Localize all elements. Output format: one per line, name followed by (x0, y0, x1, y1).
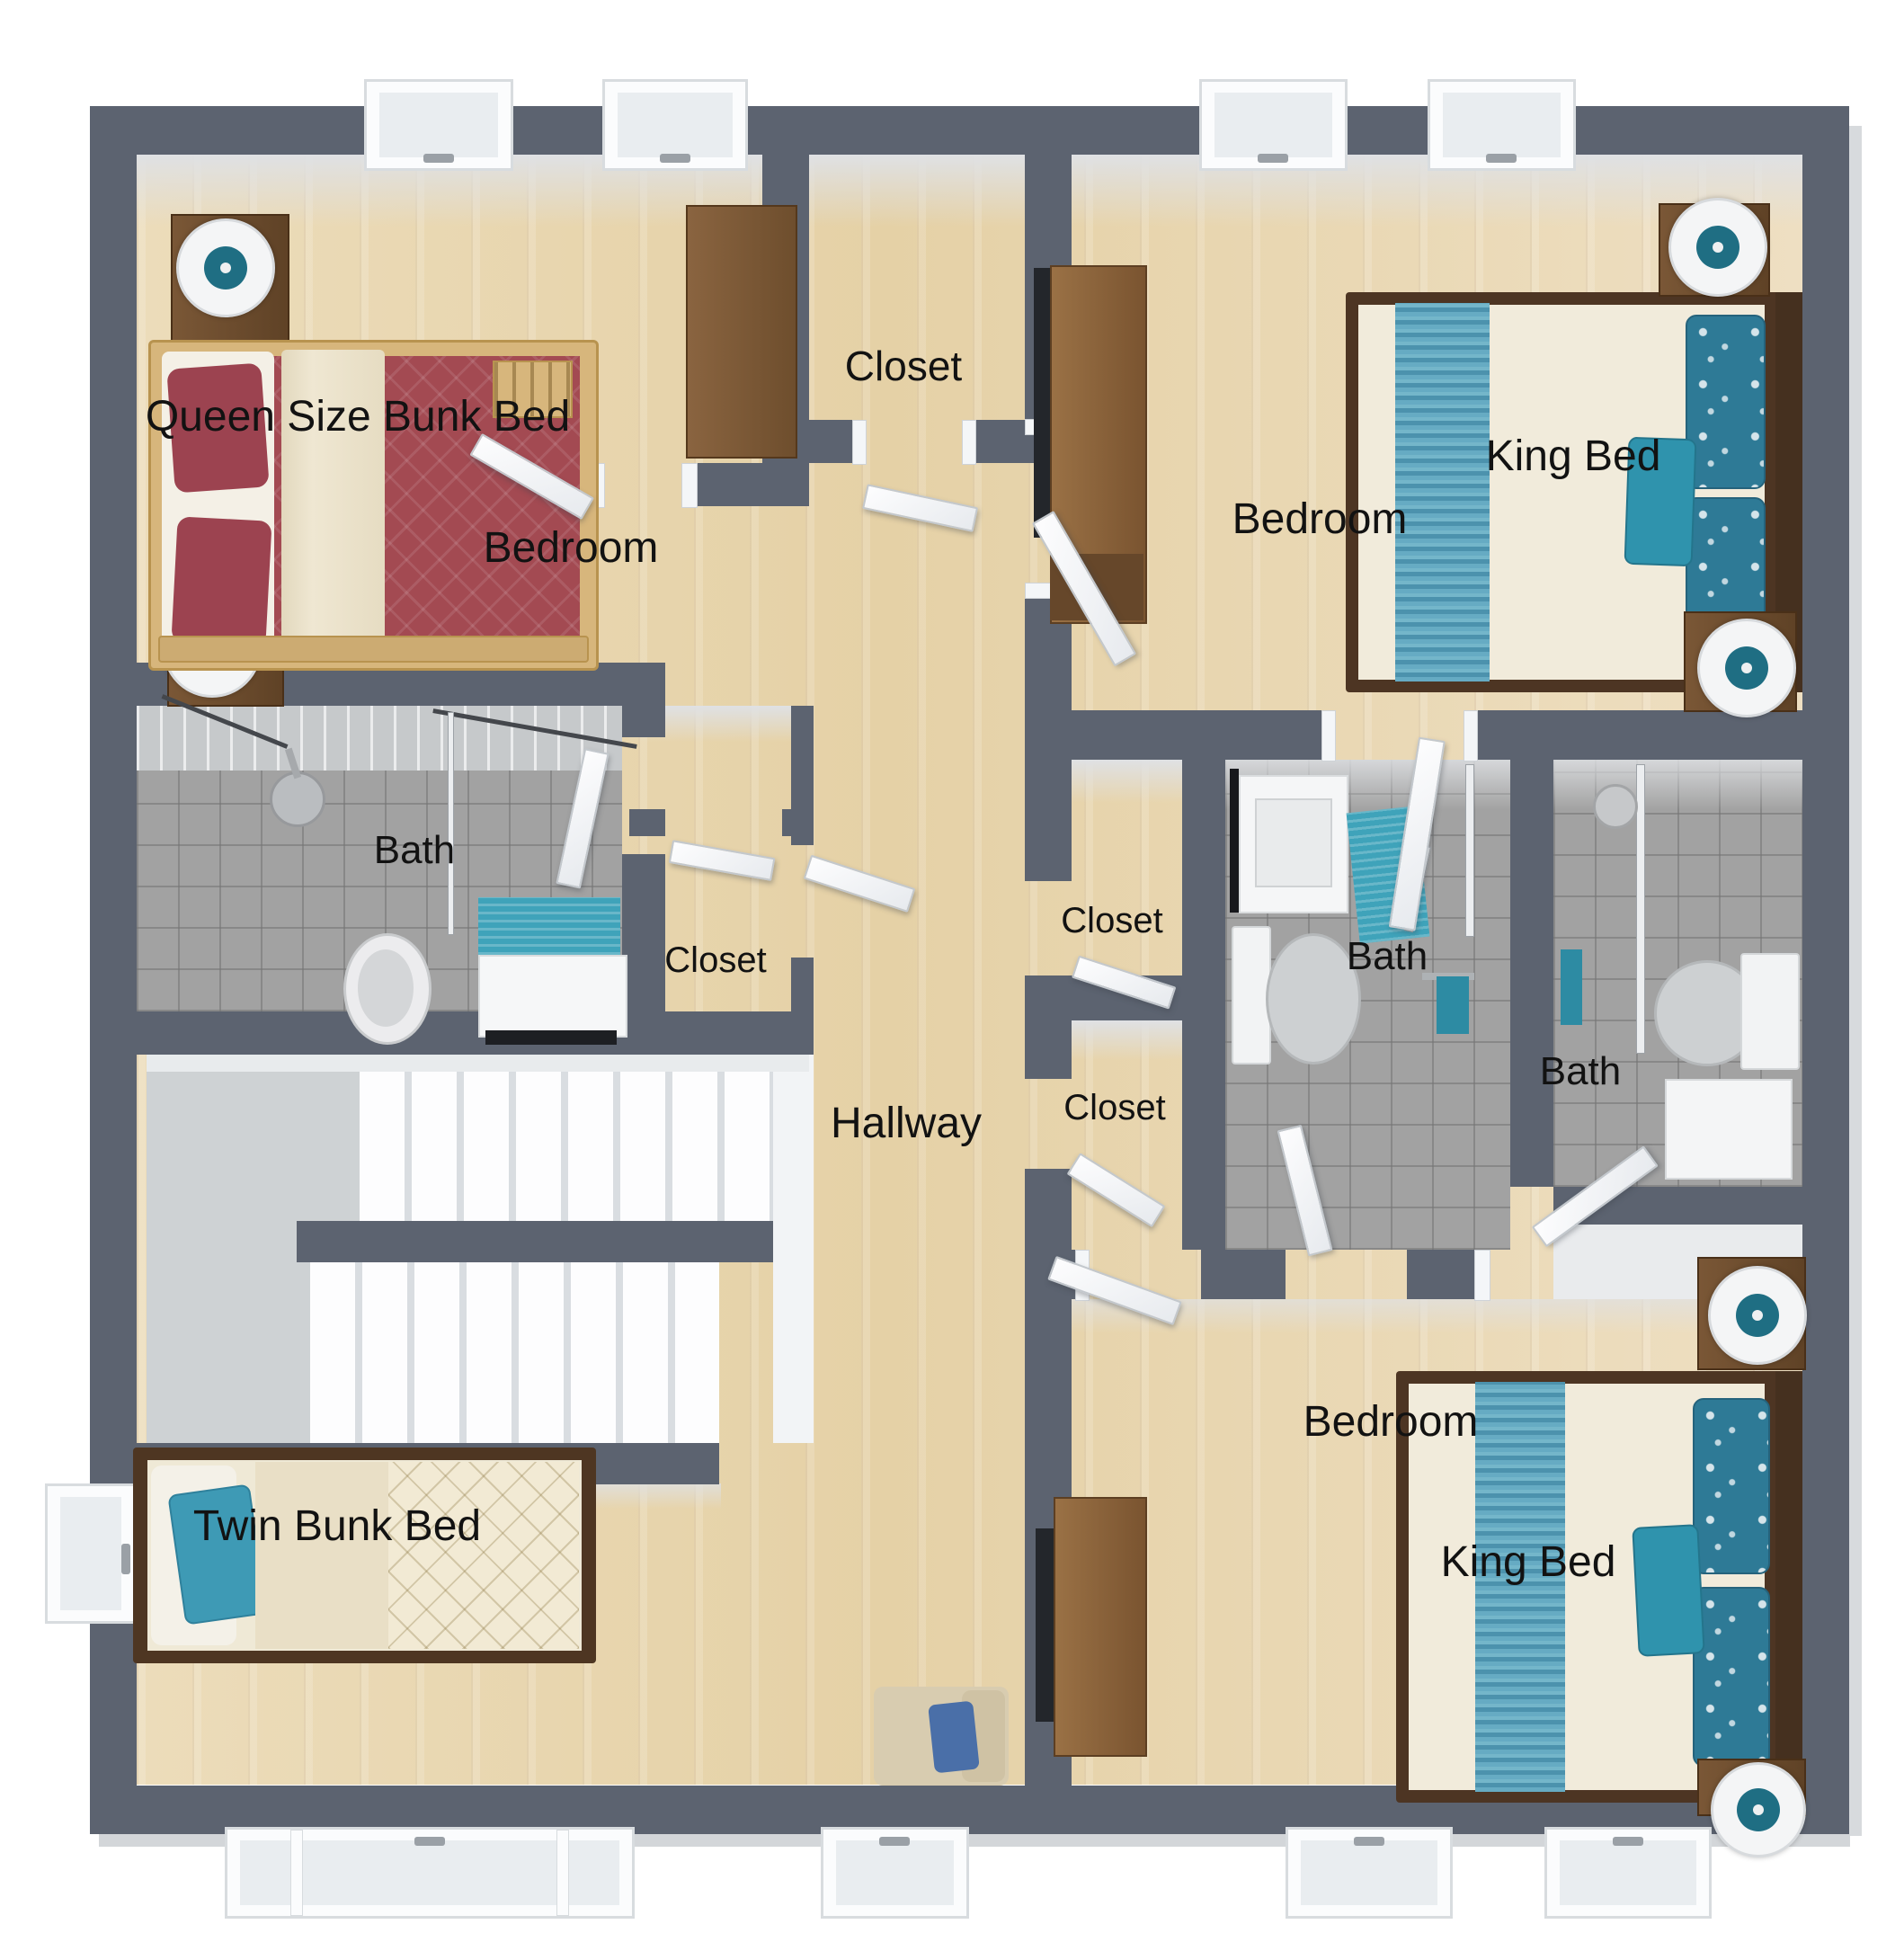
sink (1255, 798, 1332, 887)
label-bath-right: Bath (1311, 1050, 1850, 1093)
wall-bedroomC-bottom-east (1474, 710, 1802, 760)
wardrobe (686, 205, 797, 459)
bunk-footrail (158, 636, 589, 663)
window-bottom-2 (821, 1827, 969, 1919)
label-bedroom-bottom-right: Bedroom (1121, 1399, 1660, 1447)
wall-bedroomH-top-2 (1201, 1250, 1286, 1299)
label-bath-middle: Bath (1117, 935, 1657, 978)
queen-bunk-bed (148, 340, 599, 671)
shower-head (1593, 784, 1638, 829)
exterior-shadow-right (1849, 126, 1862, 1836)
label-closet-top: Closet (634, 343, 1173, 389)
jamb-bedroomA-2 (681, 463, 698, 508)
window-post (290, 1830, 303, 1916)
stair-top-edge (147, 1052, 809, 1072)
window-post (556, 1830, 569, 1916)
wall-bedroomA-jog-right (697, 463, 809, 506)
shower-panel (1465, 764, 1474, 937)
armchair (874, 1687, 1009, 1786)
wall-hall-east-4 (1025, 1169, 1072, 1250)
label-bedroom-top-left: Bedroom (301, 525, 841, 573)
twin-bunk-bed (133, 1448, 596, 1663)
window-glass (1301, 1840, 1437, 1905)
wall-bedroomH-top-3 (1407, 1250, 1474, 1299)
window-glass (379, 93, 498, 157)
window-handle (879, 1837, 910, 1846)
window-handle (423, 154, 454, 163)
bedroom-br-wall-face (1072, 1299, 1802, 1333)
bunk-pillow (171, 516, 271, 646)
twin-sheet (255, 1462, 388, 1649)
closet-lower-wall-face (1072, 1020, 1182, 1060)
window-handle (414, 1837, 445, 1846)
wall-closetE-right-upper (791, 706, 814, 845)
jamb-closetB-1 (852, 420, 867, 465)
towel-teal (1437, 976, 1469, 1034)
label-bath-left: Bath (145, 829, 684, 872)
window-handle (1613, 1837, 1643, 1846)
table-lamp (1697, 619, 1796, 717)
shower-divider (448, 712, 454, 935)
shower-head (270, 771, 325, 827)
window-top-3 (1199, 79, 1348, 171)
king-headboard (1775, 1371, 1802, 1803)
wall-bedroomC-bottom-west (1025, 710, 1330, 760)
king-pillow-floral (1693, 1587, 1770, 1767)
king-runner (1395, 303, 1490, 681)
wall-bathD-right-lower (622, 854, 665, 1011)
label-hallway: Hallway (636, 1100, 1176, 1148)
window-bottom-wide (225, 1827, 635, 1919)
window-top-4 (1428, 79, 1576, 171)
counter-edge (1230, 769, 1239, 913)
table-lamp (1708, 1266, 1807, 1365)
window-glass (1214, 93, 1332, 157)
window-glass (1560, 1840, 1696, 1905)
twin-quilt (388, 1462, 579, 1649)
window-glass (1443, 93, 1561, 157)
toilet-seat (358, 949, 414, 1027)
jamb-bathM-north-1 (1321, 710, 1336, 762)
wall-stairwell-top (90, 1011, 814, 1055)
wall-closets-right (1182, 760, 1225, 1250)
jamb-bathN-vestibule (1474, 1250, 1490, 1301)
table-lamp (1711, 1762, 1806, 1857)
jamb-bathM-north-2 (1464, 710, 1478, 762)
window-bottom-4 (1544, 1827, 1712, 1919)
stair-divider-wall (297, 1221, 782, 1262)
table-lamp (176, 218, 275, 317)
floor-plan: Queen Size Bunk Bed Bedroom Closet Bedro… (0, 0, 1904, 1942)
window-handle (1354, 1837, 1384, 1846)
window-handle (660, 154, 690, 163)
jamb-closetB-2 (962, 420, 976, 465)
label-twin-bunk-bed: Twin Bunk Bed (67, 1503, 607, 1551)
bath-cabinet (1665, 1079, 1793, 1180)
wall-exterior-right (1802, 106, 1849, 1834)
table-lamp (1668, 198, 1767, 297)
window-glass (618, 93, 733, 157)
vanity-counter (485, 1030, 617, 1045)
armchair-pillow-blue (928, 1701, 980, 1774)
tv-panel (1036, 1528, 1055, 1722)
label-king-bed-top: King Bed (1303, 433, 1843, 481)
label-king-bed-bottom: King Bed (1259, 1539, 1798, 1587)
closet-upper-wall-face (1072, 760, 1182, 803)
label-closet-hall: Closet (446, 940, 985, 980)
window-top-2 (602, 79, 748, 171)
stair-flight-lower (310, 1262, 719, 1443)
window-glass (836, 1840, 954, 1905)
media-console (1054, 1497, 1147, 1757)
window-top-1 (364, 79, 513, 171)
window-bottom-3 (1286, 1827, 1453, 1919)
window-handle (1258, 154, 1288, 163)
wall-exterior-top (90, 106, 1847, 155)
label-bedroom-top-right: Bedroom (1050, 496, 1589, 544)
wall-bathD-right-upper (622, 663, 665, 737)
wall-hall-east-3 (1025, 975, 1072, 1079)
window-handle (1486, 154, 1517, 163)
label-queen-bunk-bed: Queen Size Bunk Bed (88, 394, 627, 441)
